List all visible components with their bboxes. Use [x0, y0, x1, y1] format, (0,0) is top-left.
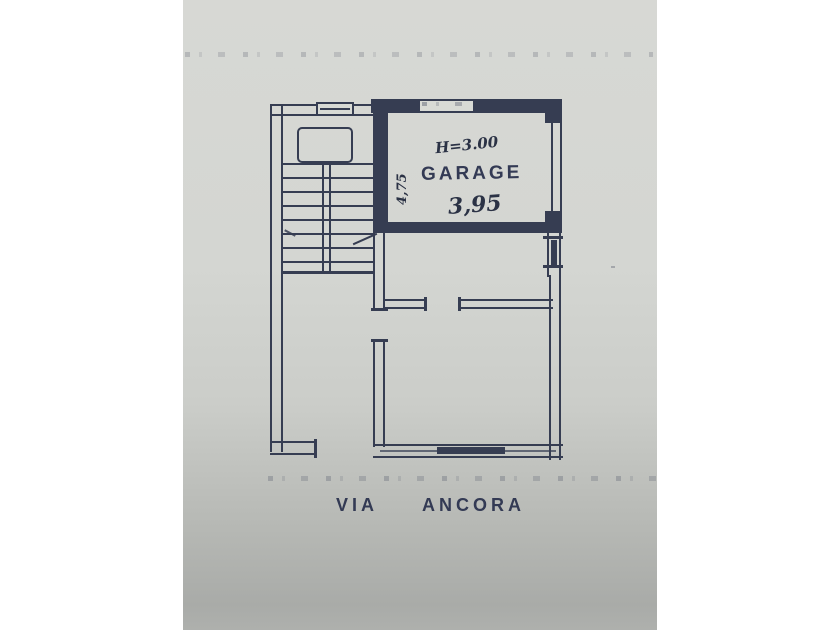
- window-mullion-line: [320, 108, 350, 110]
- outer-right-wall: [549, 275, 561, 460]
- garage-room-label: GARAGE: [421, 162, 523, 186]
- bottom-left-wall: [270, 441, 317, 455]
- stair-garage-partition-wall: [373, 99, 388, 233]
- street-label-name: ANCORA: [422, 495, 525, 516]
- right-window-bar: [551, 240, 557, 266]
- stair-landing: [297, 127, 353, 163]
- side-dimension-label: 4,75: [395, 139, 411, 205]
- top-wall-window: [316, 102, 354, 116]
- garage-top-wall-right: [473, 99, 562, 113]
- street-label-via: VIA: [336, 495, 378, 516]
- garage-bottom-wall: [376, 222, 562, 233]
- interior-wall-right-endcap: [458, 297, 461, 311]
- scanned-floor-plan-photo: { "plan": { "garage_label": "GARAGE", "h…: [0, 0, 840, 630]
- middle-wall-lower: [373, 341, 385, 447]
- garage-top-wall-left: [371, 99, 420, 113]
- garage-door-opening: [420, 99, 473, 113]
- middle-wall-upper: [373, 233, 385, 310]
- outer-left-wall: [270, 104, 283, 452]
- garage-door-hatch: [422, 102, 470, 106]
- garage-right-wall: [551, 113, 562, 215]
- bottom-wall-window-bar: [437, 447, 505, 454]
- interior-wall-left-endcap: [424, 297, 427, 311]
- height-annotation: H=3.00: [434, 133, 499, 158]
- bottom-left-wall-endcap: [314, 439, 317, 458]
- photo-paper: H=3.00 GARAGE 3,95 4,75 VIA ANCORA: [183, 0, 657, 630]
- right-window-rung-top: [543, 236, 563, 239]
- interior-wall-left: [385, 299, 427, 309]
- paper-speck: [611, 266, 615, 268]
- scan-noise-bottom: [268, 476, 660, 481]
- front-dimension-label: 3,95: [447, 190, 502, 220]
- scan-noise-top: [185, 52, 653, 57]
- stair-center-divider: [322, 163, 331, 273]
- interior-wall-right: [458, 299, 553, 309]
